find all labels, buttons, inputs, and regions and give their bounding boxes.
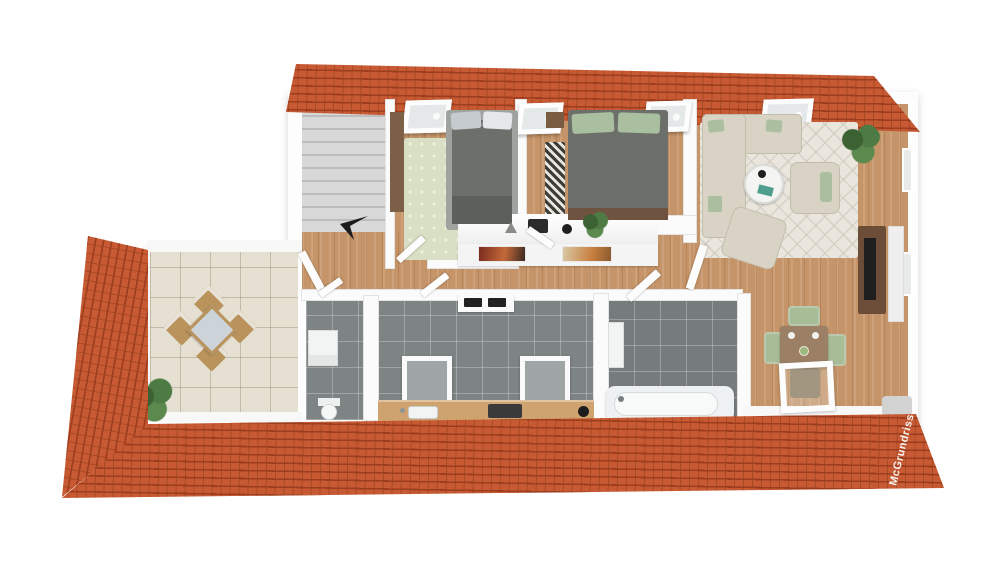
dining-plate-1-icon (788, 332, 795, 339)
bath-cabinet (608, 322, 624, 368)
armchair-right-cushion (820, 172, 832, 202)
dining-chair-north (788, 306, 820, 326)
dining-plate-2-icon (812, 332, 819, 339)
living-plant (840, 122, 882, 166)
roof-bottom (60, 410, 948, 504)
toilet-bowl (321, 404, 337, 420)
nightstand (546, 112, 564, 128)
kitchen-stove (488, 404, 522, 418)
washer-cabinet (308, 330, 338, 366)
tv-screen (864, 238, 876, 300)
floorplan-canvas: McGrundriss (0, 0, 1000, 563)
kitchen-faucet-icon (400, 408, 405, 413)
bed-left-blanket (452, 196, 512, 224)
skylight-handle-icon (433, 113, 441, 120)
dining-window (779, 361, 836, 414)
decor-cone-icon (505, 222, 517, 233)
sofa-cushion-3 (708, 196, 722, 212)
stairs-direction-arrow-icon (334, 212, 370, 242)
dining-centerpiece-icon (799, 346, 809, 356)
bed-middle-pillow-1 (572, 112, 615, 134)
bed-left-pillow-2 (483, 111, 513, 129)
wall-wc-kitchen (364, 296, 378, 420)
bed-left-mattress (452, 120, 512, 204)
bathtub-faucet-icon (618, 396, 624, 402)
bathtub-basin (614, 392, 718, 416)
wall-picture-1 (478, 246, 526, 262)
terrace-wall-north (146, 240, 302, 252)
kitchen-kettle-icon (578, 406, 589, 417)
sofa-cushion-2 (766, 119, 783, 132)
decor-ball-icon (562, 224, 572, 234)
hall-plant (580, 210, 610, 240)
wardrobe-dark (390, 112, 404, 212)
kitchen-sink (408, 406, 438, 419)
skylight-window-1 (402, 99, 452, 133)
east-wall-window-1 (902, 148, 913, 192)
bed-middle-pillow-2 (618, 112, 661, 133)
skylight-handle-icon (673, 114, 681, 121)
cooktop-burner-1-icon (464, 298, 482, 307)
cooktop-burner-2-icon (488, 298, 506, 307)
sofa-cushion-1 (707, 119, 724, 133)
armchair-right (790, 162, 840, 214)
wall-picture-2 (562, 246, 612, 262)
wall-deco-panel (888, 226, 904, 322)
bed-left-pillow-1 (450, 111, 481, 130)
coffee-table-cup-icon (758, 170, 766, 178)
